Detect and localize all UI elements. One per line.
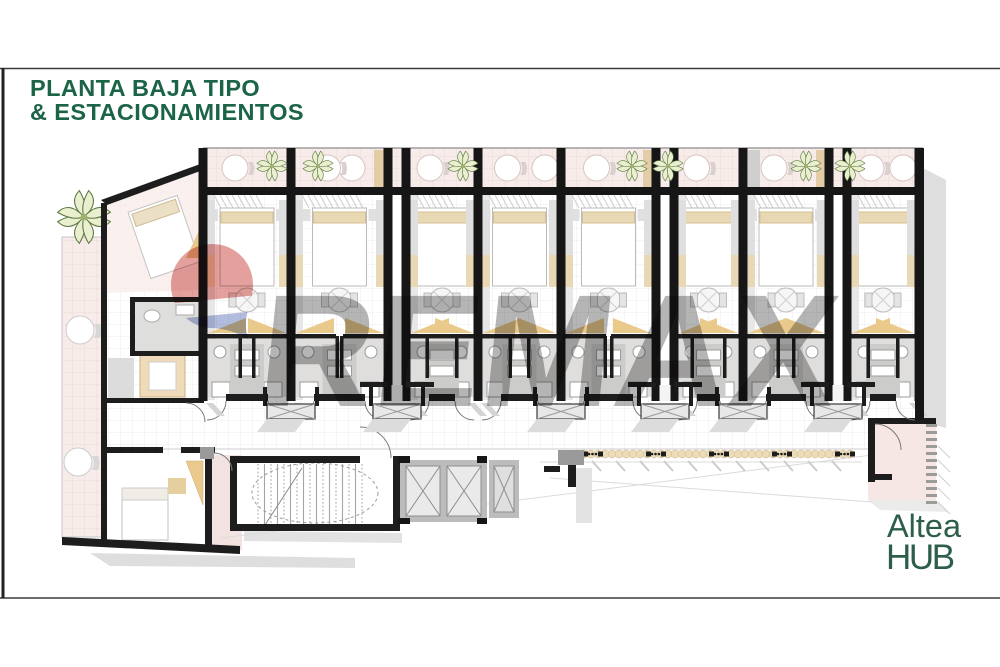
svg-text:REMAX: REMAX: [250, 261, 847, 440]
svg-text:PLANTA BAJA TIPO: PLANTA BAJA TIPO: [30, 75, 260, 101]
svg-text:& ESTACIONAMIENTOS: & ESTACIONAMIENTOS: [30, 99, 304, 125]
svg-text:HUB: HUB: [886, 538, 954, 577]
